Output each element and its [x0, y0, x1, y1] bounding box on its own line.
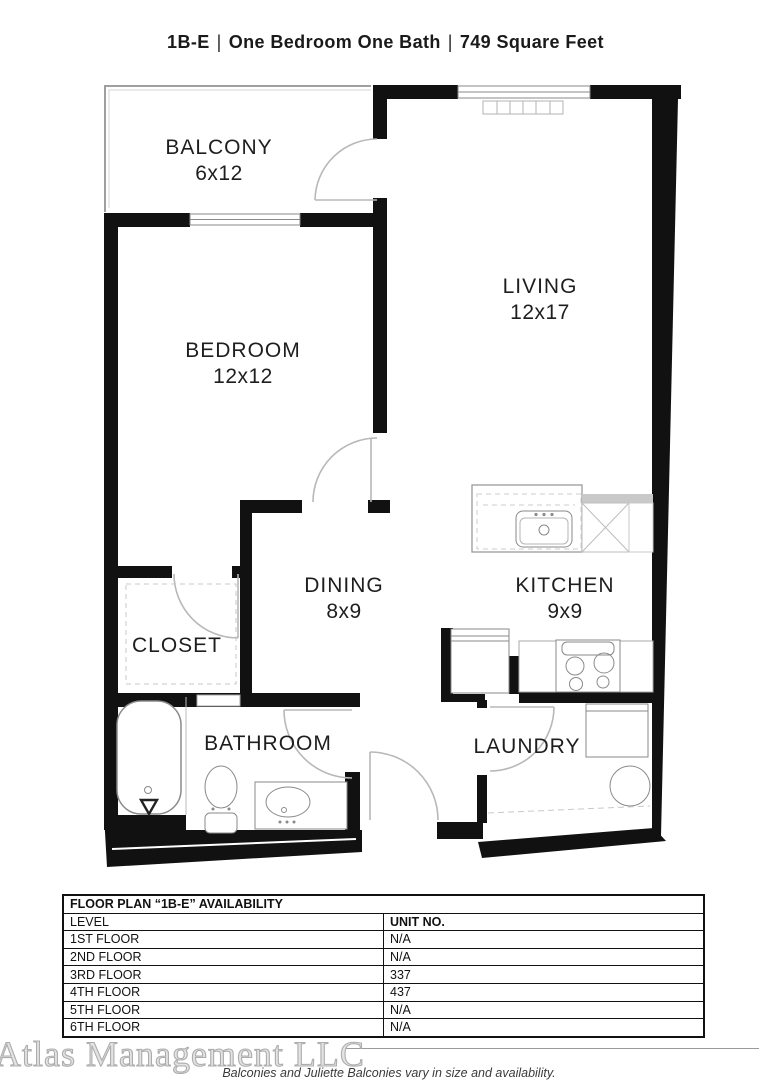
- bedroom-window: [190, 214, 300, 225]
- living-window: [458, 86, 590, 98]
- balcony-disclaimer-note: Balconies and Juliette Balconies vary in…: [0, 1066, 771, 1080]
- room-label-bedroom: BEDROOM: [185, 339, 301, 362]
- room-label-kitchen: KITCHEN: [515, 574, 614, 597]
- level-cell: 2ND FLOOR: [63, 948, 384, 966]
- wall-laundry-top-stub: [477, 700, 487, 708]
- level-cell: 5TH FLOOR: [63, 1001, 384, 1019]
- wall-left: [104, 213, 118, 830]
- kitchen-counter: [472, 485, 653, 552]
- table-title-row: FLOOR PLAN “1B-E” AVAILABILITY: [63, 895, 704, 913]
- table-row: 5TH FLOOR N/A: [63, 1001, 704, 1019]
- room-dims-kitchen: 9x9: [547, 600, 582, 623]
- refrigerator-space-x: [582, 503, 629, 552]
- table-title: FLOOR PLAN “1B-E” AVAILABILITY: [63, 895, 704, 913]
- table-row: 3RD FLOOR 337: [63, 966, 704, 984]
- availability-table: FLOOR PLAN “1B-E” AVAILABILITY LEVEL UNI…: [62, 894, 705, 1038]
- room-label-living: LIVING: [503, 275, 578, 298]
- washer: [586, 704, 648, 757]
- bathroom-wall-niche: [197, 695, 240, 706]
- wall-closet-right: [240, 500, 252, 695]
- room-label-balcony: BALCONY: [165, 136, 272, 159]
- entry-door: [370, 752, 438, 820]
- room-dims-dining: 8x9: [326, 600, 361, 623]
- balcony-door: [315, 139, 377, 200]
- column-header-unit-no: UNIT NO.: [384, 913, 705, 931]
- unit-cell: N/A: [384, 948, 705, 966]
- bedroom-door: [313, 438, 377, 502]
- wall-laundry-left: [477, 775, 487, 823]
- unit-cell: 437: [384, 983, 705, 1001]
- room-label-closet: CLOSET: [132, 634, 222, 657]
- level-cell: 3RD FLOOR: [63, 966, 384, 984]
- wall-right: [652, 99, 678, 836]
- room-dims-living: 12x17: [510, 301, 570, 324]
- wall-top-right: [590, 85, 681, 99]
- wall-closet-top-stub: [232, 566, 252, 578]
- wall-bottom-laundry: [478, 828, 666, 858]
- room-label-dining: DINING: [304, 574, 384, 597]
- wall-bedroom-top-b: [300, 213, 387, 227]
- level-cell: 1ST FLOOR: [63, 931, 384, 949]
- wall-balcony-stub: [373, 99, 387, 139]
- wall-kitchen-laundry: [519, 692, 653, 703]
- wall-bedroom-top-a: [104, 213, 190, 227]
- toilet: [205, 766, 237, 833]
- unit-cell: N/A: [384, 931, 705, 949]
- column-header-level: LEVEL: [63, 913, 384, 931]
- room-dims-balcony: 6x12: [195, 162, 243, 185]
- wall-entry-stub: [437, 822, 483, 839]
- laundry-floor-dashed: [488, 806, 650, 813]
- wall-bedroom-living: [373, 227, 387, 433]
- room-label-laundry: LAUNDRY: [474, 735, 581, 758]
- stove: [556, 640, 620, 692]
- unit-cell: 337: [384, 966, 705, 984]
- floor-plan-page: 1B-E|One Bedroom One Bath|749 Square Fee…: [0, 0, 771, 1080]
- unit-cell: N/A: [384, 1001, 705, 1019]
- vanity-sink: [255, 782, 347, 829]
- footer-rule: [342, 1048, 759, 1049]
- living-baseboard: [483, 101, 563, 114]
- bathtub: [117, 701, 181, 814]
- wall-closet-top: [112, 566, 172, 578]
- wall-fridge-stub: [509, 656, 519, 694]
- dryer: [610, 766, 650, 806]
- level-cell: 4TH FLOOR: [63, 983, 384, 1001]
- kitchen-side-cabinet: [629, 503, 653, 552]
- kitchen-sink: [516, 511, 572, 547]
- room-dims-bedroom: 12x12: [213, 365, 273, 388]
- unit-cell: N/A: [384, 1019, 705, 1037]
- table-row: 1ST FLOOR N/A: [63, 931, 704, 949]
- doors: [174, 139, 554, 820]
- table-header-row: LEVEL UNIT NO.: [63, 913, 704, 931]
- table-row: 2ND FLOOR N/A: [63, 948, 704, 966]
- room-label-bathroom: BATHROOM: [204, 732, 332, 755]
- refrigerator: [451, 629, 509, 693]
- table-row: 4TH FLOOR 437: [63, 983, 704, 1001]
- kitchen-cabinet-strip: [582, 494, 653, 503]
- wall-top-left: [373, 85, 458, 99]
